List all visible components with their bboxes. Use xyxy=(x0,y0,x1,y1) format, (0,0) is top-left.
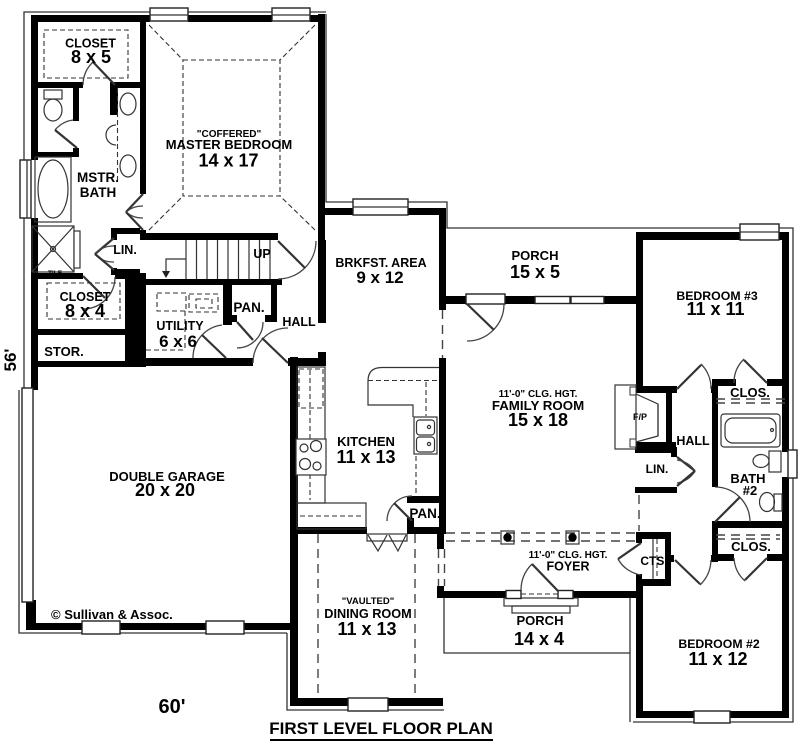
svg-text:HALL: HALL xyxy=(282,315,316,329)
svg-text:© Sullivan & Assoc.: © Sullivan & Assoc. xyxy=(51,607,173,622)
svg-text:PORCH: PORCH xyxy=(517,613,564,628)
svg-text:HALL: HALL xyxy=(676,434,710,448)
svg-text:56': 56' xyxy=(1,349,20,372)
svg-text:TILE: TILE xyxy=(48,270,63,277)
svg-text:9 x 12: 9 x 12 xyxy=(356,268,403,287)
svg-text:20 x 20: 20 x 20 xyxy=(135,480,195,500)
svg-text:15 x 5: 15 x 5 xyxy=(510,262,560,282)
svg-text:CLOS.: CLOS. xyxy=(730,385,770,400)
svg-text:UP: UP xyxy=(253,247,270,261)
svg-text:FIRST LEVEL FLOOR PLAN: FIRST LEVEL FLOOR PLAN xyxy=(269,719,493,738)
svg-text:"VAULTED": "VAULTED" xyxy=(342,596,394,607)
svg-text:BATH: BATH xyxy=(80,185,117,200)
svg-text:FOYER: FOYER xyxy=(546,560,589,574)
svg-text:F/P: F/P xyxy=(633,412,647,422)
svg-text:8 x 4: 8 x 4 xyxy=(65,301,105,321)
svg-text:LIN.: LIN. xyxy=(113,243,137,257)
svg-text:#2: #2 xyxy=(743,483,757,498)
svg-text:PAN.: PAN. xyxy=(409,506,440,521)
svg-text:UTILITY: UTILITY xyxy=(156,319,204,333)
svg-text:CTS.: CTS. xyxy=(640,554,667,568)
svg-text:8 x 5: 8 x 5 xyxy=(71,47,111,67)
svg-text:11 x 12: 11 x 12 xyxy=(688,649,747,669)
svg-text:PAN.: PAN. xyxy=(233,300,264,315)
svg-text:CLOS.: CLOS. xyxy=(731,539,771,554)
svg-text:14 x 17: 14 x 17 xyxy=(198,151,258,171)
svg-text:15 x 18: 15 x 18 xyxy=(508,410,568,430)
svg-text:11 x 13: 11 x 13 xyxy=(337,619,396,639)
svg-text:MSTR.: MSTR. xyxy=(77,170,119,185)
svg-text:14 x 4: 14 x 4 xyxy=(514,629,564,649)
svg-text:STOR.: STOR. xyxy=(44,344,84,359)
svg-text:LIN.: LIN. xyxy=(646,462,669,476)
svg-text:PORCH: PORCH xyxy=(512,248,559,263)
svg-text:60': 60' xyxy=(158,696,185,718)
svg-text:6 x 6: 6 x 6 xyxy=(159,332,197,351)
svg-text:11 x 11: 11 x 11 xyxy=(686,299,744,319)
svg-text:11 x 13: 11 x 13 xyxy=(336,447,395,467)
